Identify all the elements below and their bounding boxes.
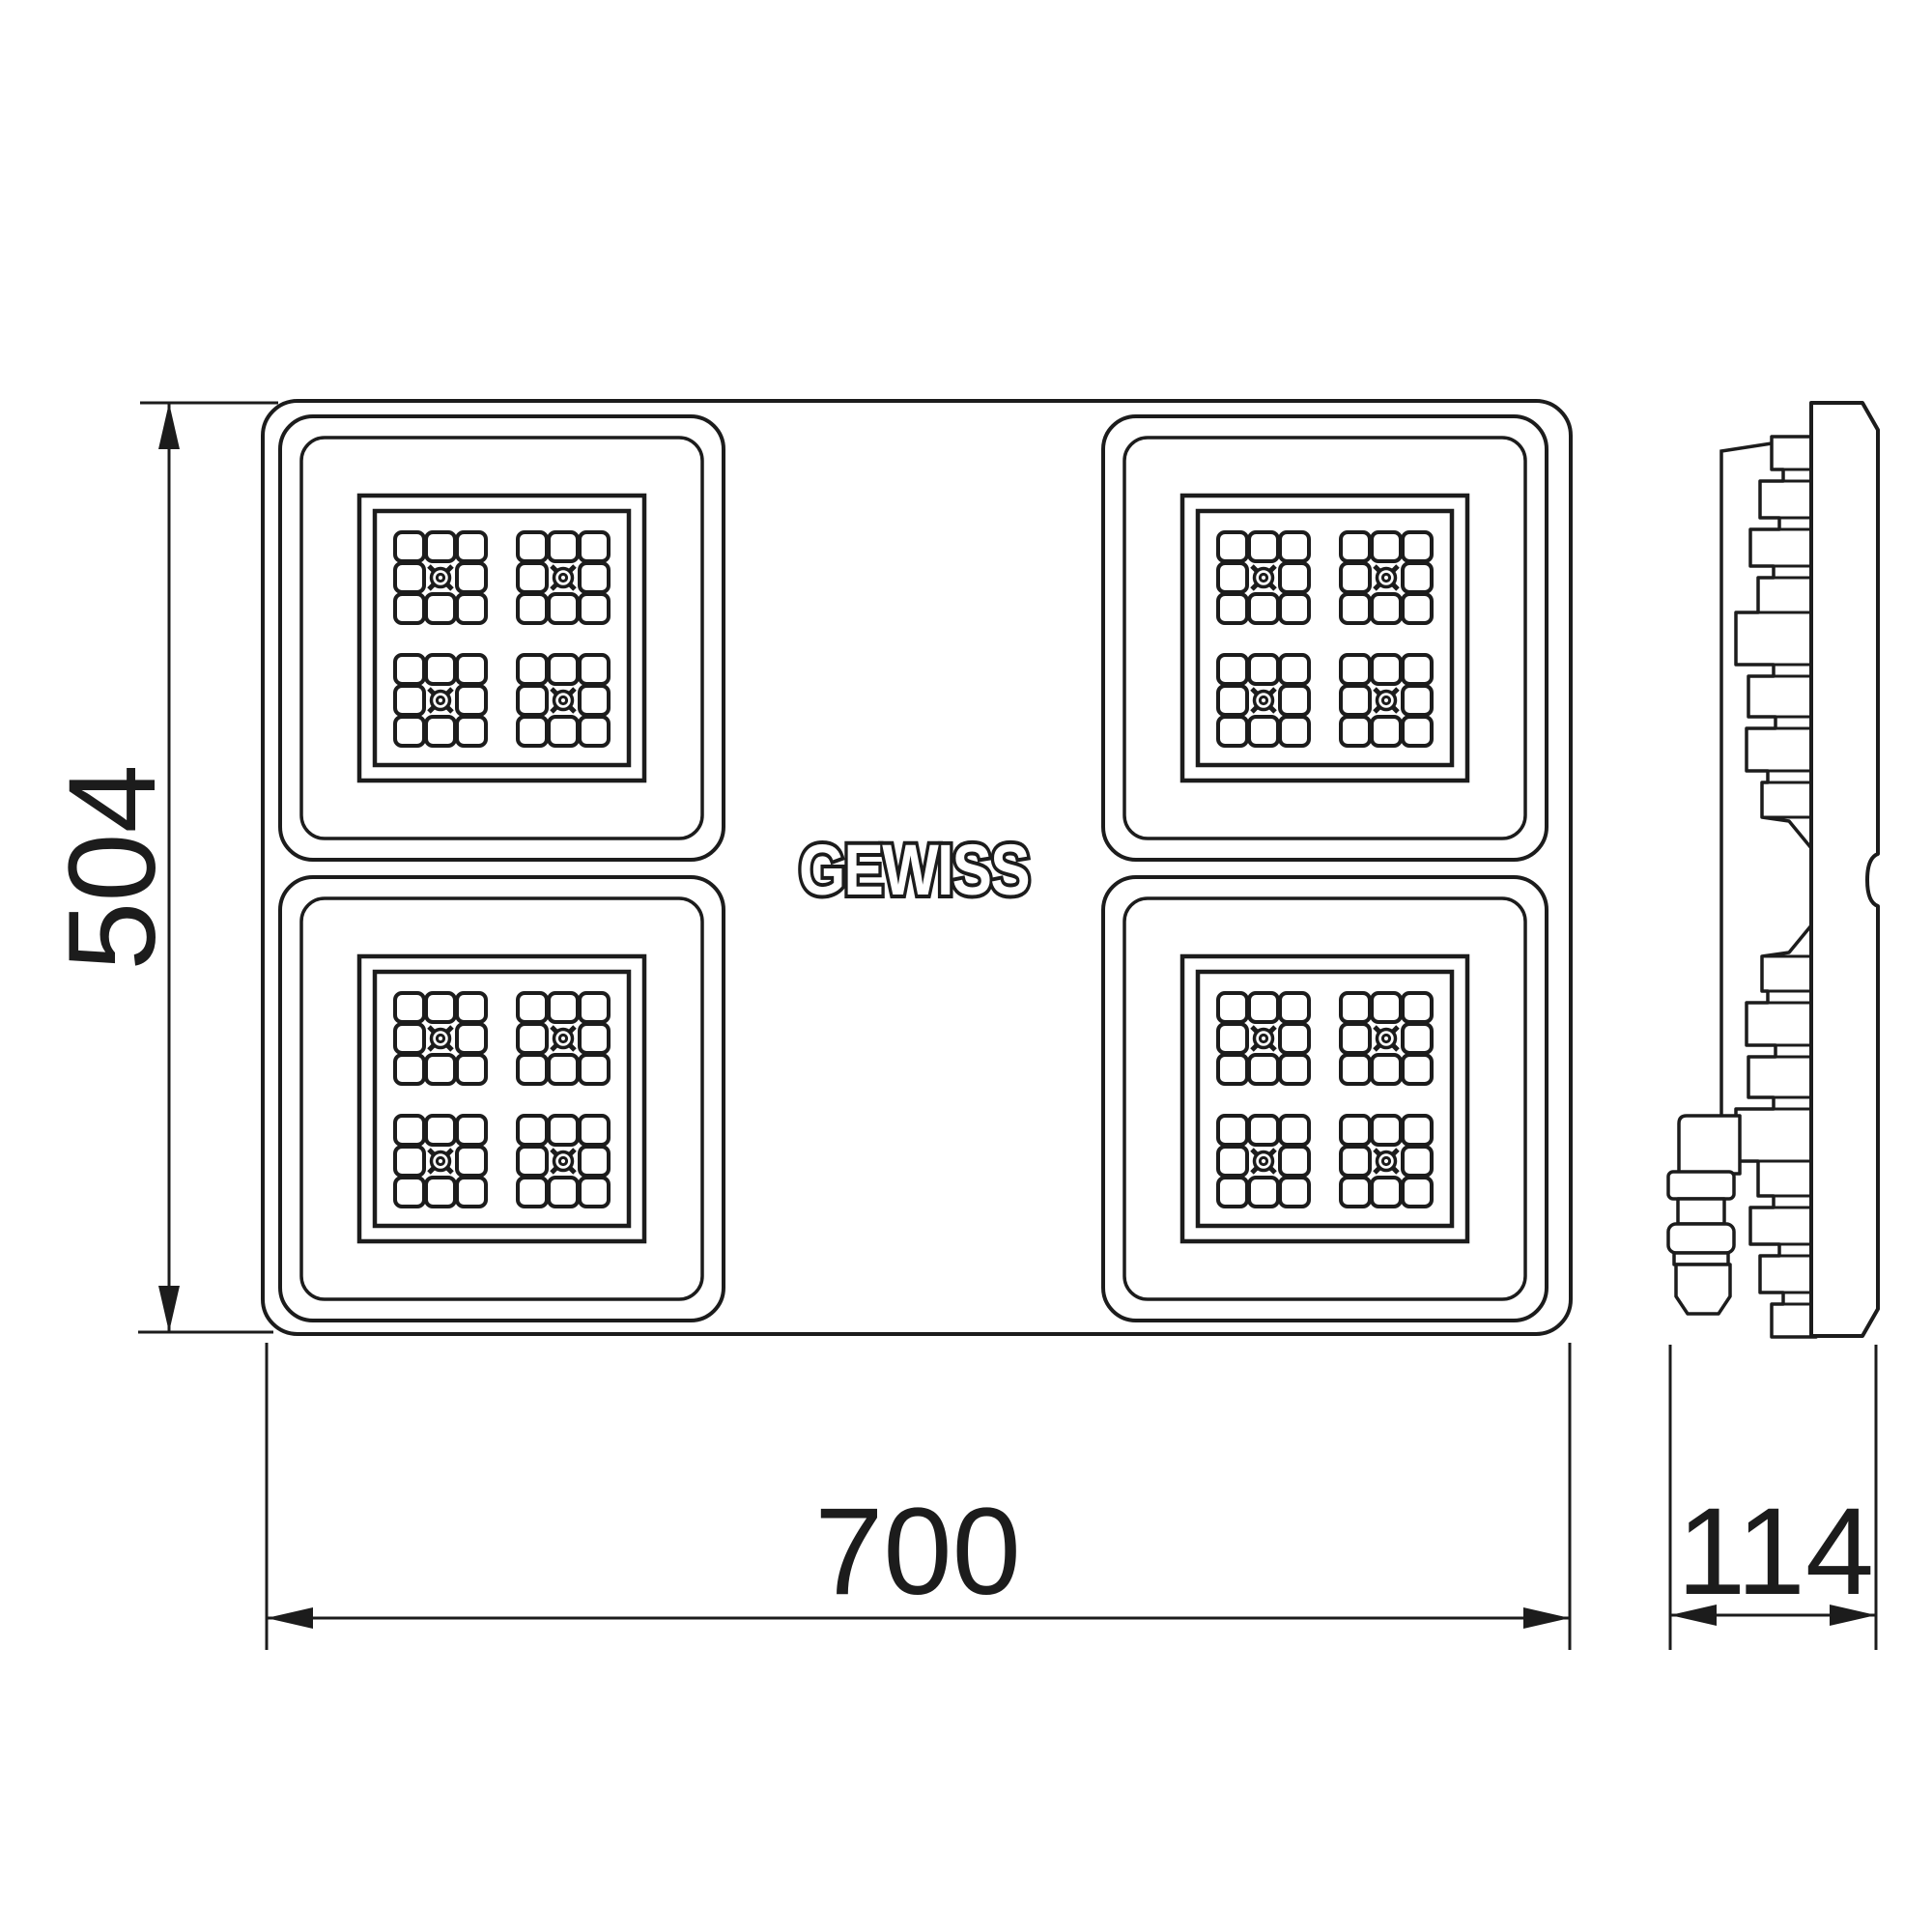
front-frame-profile — [1811, 403, 1878, 1336]
width-dimension-label: 700 — [814, 1483, 1021, 1621]
height-dimension-label: 504 — [43, 764, 182, 971]
arrow-down-icon — [158, 1286, 180, 1332]
heatsink-fins-lower — [1736, 920, 1816, 1337]
led-module-top-left — [280, 416, 724, 860]
depth-dimension-label: 114 — [1677, 1483, 1874, 1621]
heatsink-fins-upper — [1736, 437, 1816, 854]
arrow-up-icon — [158, 403, 180, 449]
led-module-bottom-right — [1103, 877, 1547, 1321]
dimension-height-504: 504 — [43, 403, 278, 1332]
arrow-right-icon — [1523, 1607, 1570, 1629]
arrow-left-icon — [267, 1607, 313, 1629]
dimension-width-700: 700 — [267, 1343, 1570, 1650]
side-view — [1668, 403, 1878, 1337]
cable-gland — [1668, 1116, 1740, 1314]
led-module-top-right — [1103, 416, 1547, 860]
floodlight-dimensional-drawing: GEWISS 504 700 — [0, 0, 1932, 1932]
technical-drawing-page: GEWISS 504 700 — [0, 0, 1932, 1932]
front-view: GEWISS — [263, 401, 1571, 1334]
brand-logo: GEWISS — [799, 830, 1029, 910]
led-module-bottom-left — [280, 877, 724, 1321]
dimension-depth-114: 114 — [1670, 1345, 1876, 1650]
